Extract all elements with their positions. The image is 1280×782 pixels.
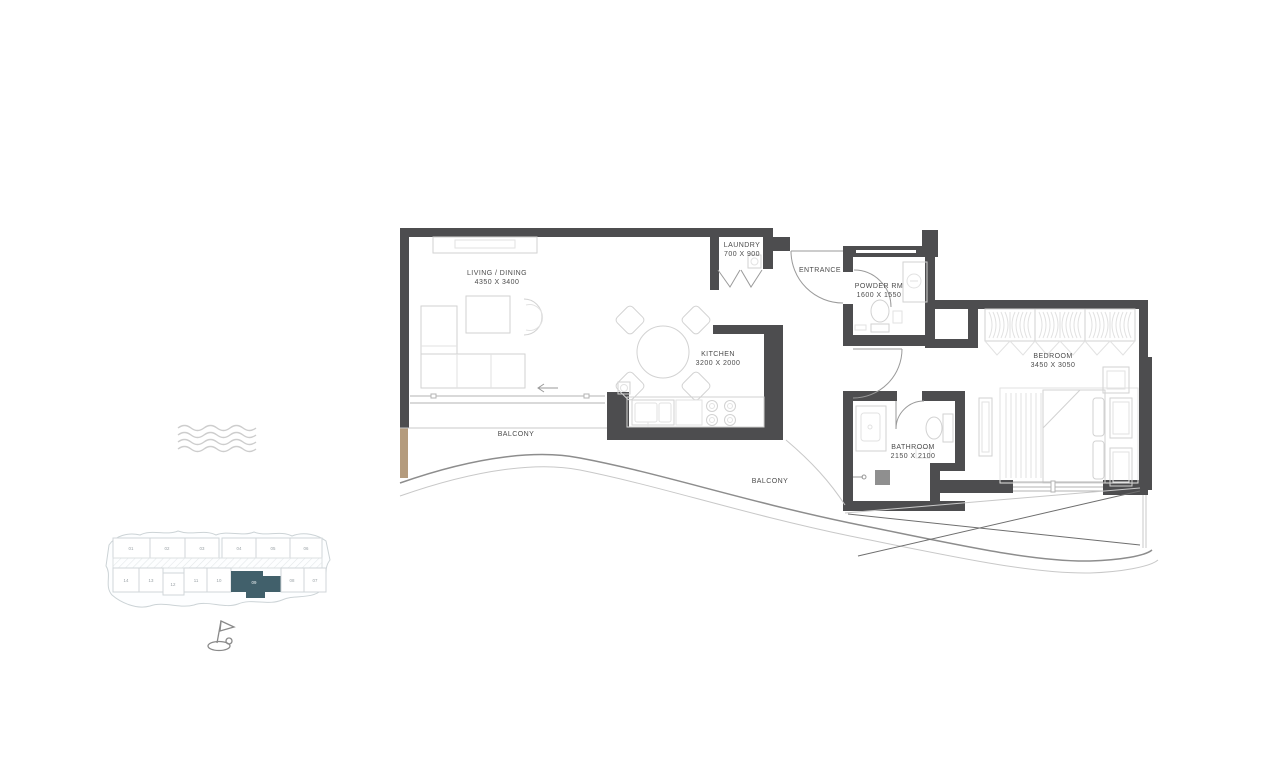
bathroom-door	[896, 401, 924, 429]
bathroom-toilet	[926, 414, 953, 442]
room-dims-bathroom: 2150 X 2100	[891, 453, 936, 460]
svg-text:01: 01	[129, 546, 134, 551]
svg-text:05: 05	[271, 546, 276, 551]
floorplan-page: LIVING / DINING 4350 X 3400 LAUNDRY 700 …	[0, 0, 1280, 782]
room-label-powder: POWDER RM	[855, 283, 903, 290]
bedroom-bench	[1103, 367, 1129, 393]
kitchen-sink	[632, 400, 674, 427]
bedroom-dresser	[979, 398, 992, 456]
room-label-balcony-right: BALCONY	[752, 478, 789, 485]
room-label-kitchen: KITCHEN	[701, 351, 735, 358]
kitchen-counter	[618, 382, 764, 427]
room-label-living: LIVING / DINING	[467, 270, 527, 277]
room-label-laundry: LAUNDRY	[724, 242, 760, 249]
svg-text:06: 06	[304, 546, 309, 551]
balcony-curves	[400, 440, 1158, 573]
waves-icon	[178, 426, 256, 452]
sofa	[421, 306, 525, 388]
svg-text:12: 12	[171, 582, 176, 587]
powder-toilet	[855, 300, 902, 332]
svg-text:13: 13	[149, 578, 154, 583]
stove-burners	[707, 401, 736, 426]
keyplan-highlighted-unit-label: 09	[252, 580, 257, 585]
nightstand	[1110, 398, 1132, 486]
svg-text:08: 08	[290, 578, 295, 583]
wardrobe	[985, 309, 1135, 355]
floorplan-canvas: LIVING / DINING 4350 X 3400 LAUNDRY 700 …	[0, 0, 1280, 782]
room-dims-laundry: 700 X 900	[724, 251, 760, 258]
room-label-entrance: ENTRANCE	[799, 267, 841, 274]
svg-text:11: 11	[194, 578, 199, 583]
svg-text:04: 04	[237, 546, 242, 551]
svg-text:07: 07	[313, 578, 318, 583]
armchair	[524, 299, 543, 335]
svg-text:14: 14	[124, 578, 129, 583]
room-label-bathroom: BATHROOM	[891, 444, 935, 451]
bed	[1043, 390, 1105, 483]
room-dims-powder: 1600 X 1550	[857, 292, 902, 299]
svg-text:02: 02	[165, 546, 170, 551]
living-glass-slider	[410, 394, 605, 403]
bathroom-vanity	[856, 406, 886, 451]
tv-console	[433, 237, 537, 253]
entrance-door	[791, 251, 843, 303]
room-label-bedroom: BEDROOM	[1033, 353, 1072, 360]
room-dims-bedroom: 3450 X 3050	[1031, 362, 1076, 369]
room-dims-kitchen: 3200 X 2000	[696, 360, 741, 367]
keyplan-corridor	[113, 558, 322, 568]
golf-flag-icon	[208, 621, 234, 651]
room-label-balcony-left: BALCONY	[498, 431, 535, 438]
bedroom-door	[853, 349, 902, 398]
key-plan: 01 02 03 04 05 06 14 13 12 11 10 09 08 0…	[106, 531, 330, 607]
coffee-table	[466, 296, 510, 333]
room-dims-living: 4350 X 3400	[475, 279, 520, 286]
powder-vanity	[903, 262, 927, 302]
terrace-hatch	[845, 488, 1146, 556]
dining-table	[614, 304, 711, 401]
direction-arrow	[538, 384, 558, 392]
svg-text:03: 03	[200, 546, 205, 551]
svg-text:10: 10	[217, 578, 222, 583]
balcony-screen	[400, 428, 408, 478]
laundry-bifold-doors	[718, 270, 762, 287]
